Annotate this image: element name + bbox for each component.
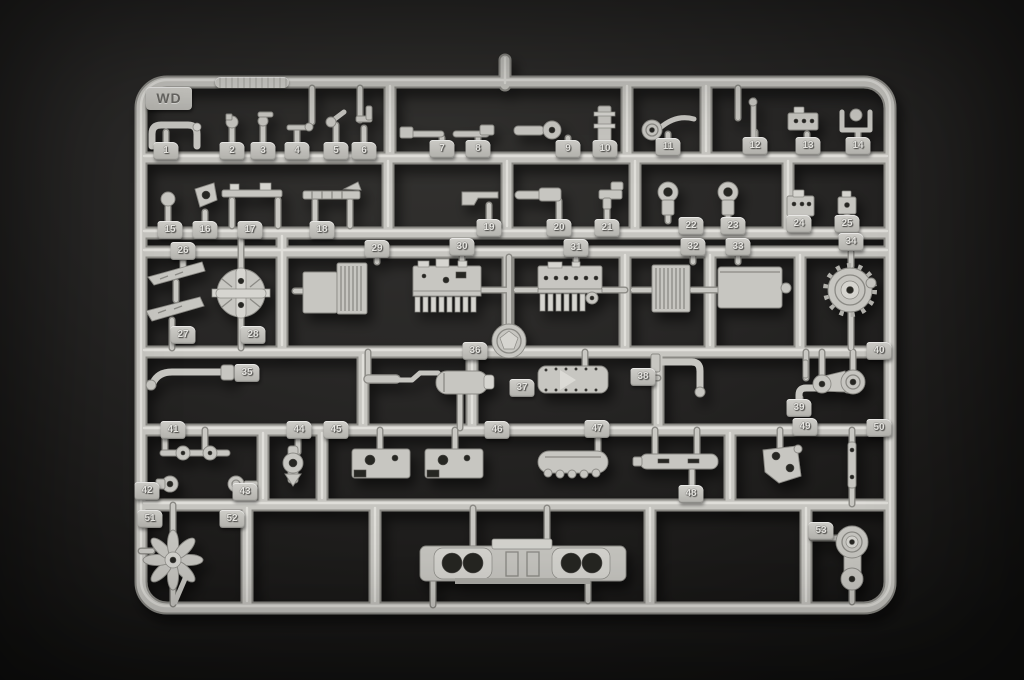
part-ball-valve bbox=[226, 114, 238, 128]
part-number-tag-49: 49 bbox=[793, 418, 818, 436]
part-number-tag-31: 31 bbox=[564, 239, 589, 257]
part-number-tag-7: 7 bbox=[430, 140, 455, 158]
part-number-tag-41: 41 bbox=[161, 421, 186, 439]
part-number-tag-15: 15 bbox=[158, 221, 183, 239]
part-u-bracket bbox=[842, 109, 870, 130]
part-number-tag-12: 12 bbox=[743, 137, 768, 155]
part-number-tag-23: 23 bbox=[721, 217, 746, 235]
part-ball-joint-rod bbox=[514, 121, 561, 139]
part-number-tag-1: 1 bbox=[154, 142, 179, 160]
part-number-tag-43: 43 bbox=[233, 483, 258, 501]
sprue-photo: WD 1234567891011121314151617181920212223… bbox=[0, 0, 1024, 680]
part-hook-lever bbox=[258, 112, 273, 126]
part-number-tag-37: 37 bbox=[510, 379, 535, 397]
part-number-tag-38: 38 bbox=[631, 368, 656, 386]
part-grille-panel bbox=[652, 265, 690, 312]
part-flywheel-disc bbox=[212, 268, 270, 318]
part-number-tag-19: 19 bbox=[477, 219, 502, 237]
part-number-tag-8: 8 bbox=[466, 140, 491, 158]
part-number-tag-29: 29 bbox=[365, 240, 390, 258]
part-small-mount bbox=[599, 182, 623, 209]
part-number-tag-9: 9 bbox=[556, 140, 581, 158]
part-number-tag-17: 17 bbox=[238, 221, 263, 239]
part-number-tag-10: 10 bbox=[593, 140, 618, 158]
part-number-tag-50: 50 bbox=[867, 419, 892, 437]
part-number-tag-5: 5 bbox=[324, 142, 349, 160]
sprue-gate-label: WD bbox=[146, 87, 192, 110]
part-cog-wheel bbox=[826, 266, 876, 314]
part-number-tag-20: 20 bbox=[547, 219, 572, 237]
part-number-tag-24: 24 bbox=[787, 215, 812, 233]
part-number-tag-4: 4 bbox=[285, 142, 310, 160]
part-exhaust-elbow bbox=[146, 365, 234, 390]
part-cylinder-rod bbox=[515, 188, 561, 201]
part-mount-plate-right bbox=[425, 449, 483, 478]
part-number-tag-26: 26 bbox=[171, 242, 196, 260]
part-tow-shackle-right bbox=[718, 182, 738, 215]
part-paddle-lever-left bbox=[400, 127, 444, 138]
part-slotted-rail bbox=[633, 454, 718, 469]
part-number-tag-47: 47 bbox=[585, 420, 610, 438]
part-fan-clutch-disc bbox=[492, 324, 526, 358]
part-number-tag-34: 34 bbox=[839, 233, 864, 251]
part-number-tag-52: 52 bbox=[220, 510, 245, 528]
part-eye-bracket bbox=[195, 183, 217, 207]
part-flat-plate bbox=[462, 192, 498, 205]
part-number-tag-2: 2 bbox=[220, 142, 245, 160]
part-number-tag-16: 16 bbox=[193, 221, 218, 239]
part-tow-shackle-left bbox=[658, 182, 678, 215]
part-engine-block-left bbox=[413, 259, 481, 312]
part-number-tag-28: 28 bbox=[241, 326, 266, 344]
part-number-tag-11: 11 bbox=[656, 138, 681, 156]
part-mount-plate-left bbox=[352, 449, 410, 478]
part-thin-rod bbox=[749, 98, 757, 140]
part-valve-cover bbox=[538, 451, 608, 478]
part-handle-rod bbox=[287, 123, 313, 131]
part-hatched-bar bbox=[303, 182, 361, 199]
part-riveted-muffler-box bbox=[538, 366, 608, 393]
part-number-tag-27: 27 bbox=[171, 326, 196, 344]
part-number-tag-25: 25 bbox=[835, 215, 860, 233]
part-number-tag-3: 3 bbox=[251, 142, 276, 160]
part-angled-bracket bbox=[326, 112, 344, 127]
part-exhaust-pipe-muffler bbox=[368, 371, 494, 394]
part-linkage-bar bbox=[160, 446, 230, 460]
part-number-tag-6: 6 bbox=[352, 142, 377, 160]
part-bumper-crossmember bbox=[420, 539, 626, 584]
part-number-tag-36: 36 bbox=[463, 342, 488, 360]
part-number-tag-44: 44 bbox=[287, 421, 312, 439]
part-number-tag-53: 53 bbox=[809, 522, 834, 540]
part-crossbar-linkage bbox=[222, 183, 282, 197]
part-pulley-pair bbox=[836, 526, 868, 590]
part-engine-block-right bbox=[538, 262, 602, 311]
part-cylinder-stack bbox=[594, 106, 615, 142]
part-number-tag-48: 48 bbox=[679, 485, 704, 503]
part-number-tag-32: 32 bbox=[681, 238, 706, 256]
part-number-tag-18: 18 bbox=[310, 221, 335, 239]
part-number-tag-35: 35 bbox=[235, 364, 260, 382]
part-number-tag-14: 14 bbox=[846, 137, 871, 155]
part-number-tag-39: 39 bbox=[787, 399, 812, 417]
part-small-block bbox=[838, 191, 856, 214]
part-thin-strip bbox=[848, 442, 856, 488]
part-number-tag-33: 33 bbox=[726, 238, 751, 256]
part-number-tag-45: 45 bbox=[324, 421, 349, 439]
part-number-tag-30: 30 bbox=[450, 238, 475, 256]
part-number-tag-51: 51 bbox=[138, 510, 163, 528]
part-number-tag-13: 13 bbox=[796, 137, 821, 155]
molded-code-strip bbox=[215, 77, 289, 88]
part-number-tag-22: 22 bbox=[679, 217, 704, 235]
part-number-tag-40: 40 bbox=[867, 342, 892, 360]
part-gearbox-box bbox=[718, 267, 791, 308]
part-number-tag-21: 21 bbox=[595, 219, 620, 237]
part-radiator bbox=[303, 263, 367, 314]
part-ball-pin bbox=[161, 192, 175, 206]
part-detail-block bbox=[788, 107, 818, 130]
part-paddle-lever-right bbox=[453, 125, 494, 137]
part-angle-bracket bbox=[763, 445, 802, 483]
part-number-tag-46: 46 bbox=[485, 421, 510, 439]
part-number-tag-42: 42 bbox=[135, 482, 160, 500]
